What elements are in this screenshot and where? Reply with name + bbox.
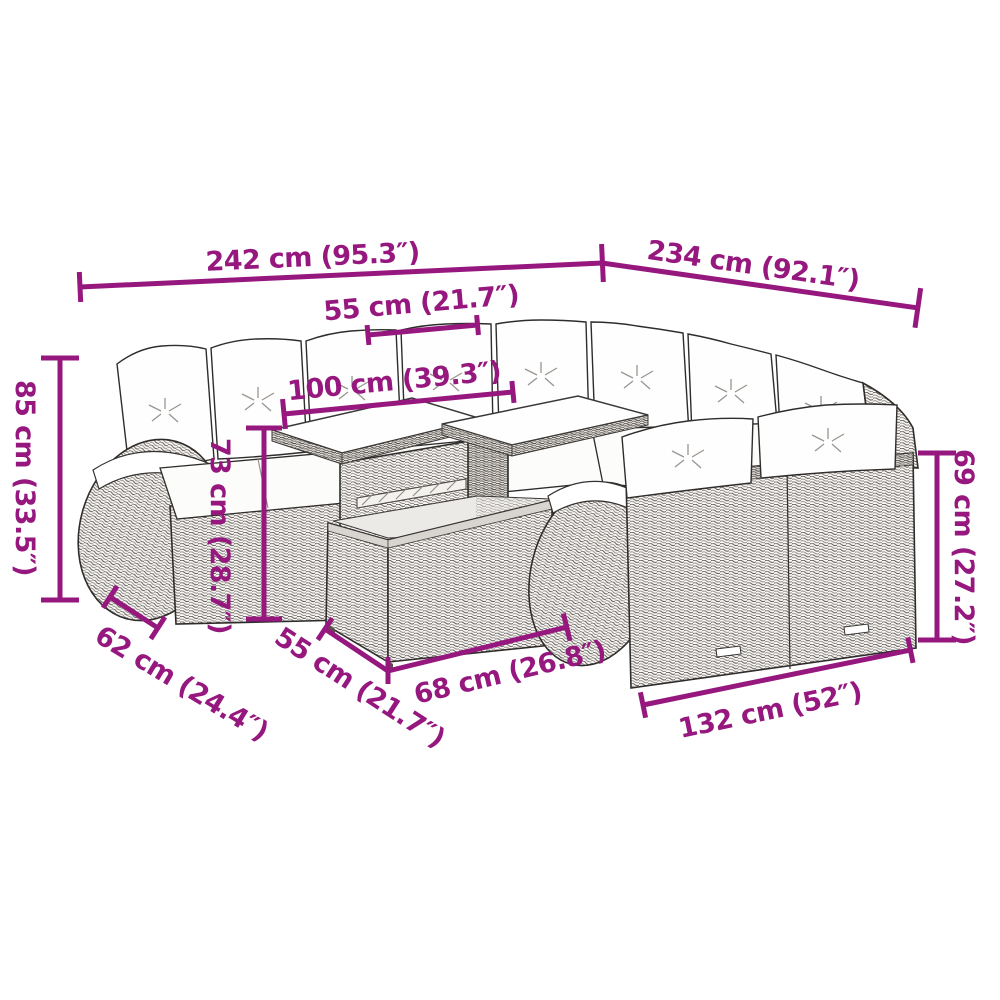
dim-55-top-label: 55 cm (21.7″) [322,280,520,328]
dimension-diagram: 242 cm (95.3″) 234 cm (92.1″) 55 cm (21.… [0,0,1000,1000]
dim-132-label: 132 cm (52″) [676,676,865,744]
front-sofa-cushion-right [758,404,897,478]
dim-85-line [41,358,79,600]
dim-73-label: 73 cm (28.7″) [204,438,235,634]
dim-62-label: 62 cm (24.4″) [89,620,273,748]
dim-69-label: 69 cm (27.2″) [948,449,979,645]
dim-85-label: 85 cm (33.5″) [9,380,40,576]
